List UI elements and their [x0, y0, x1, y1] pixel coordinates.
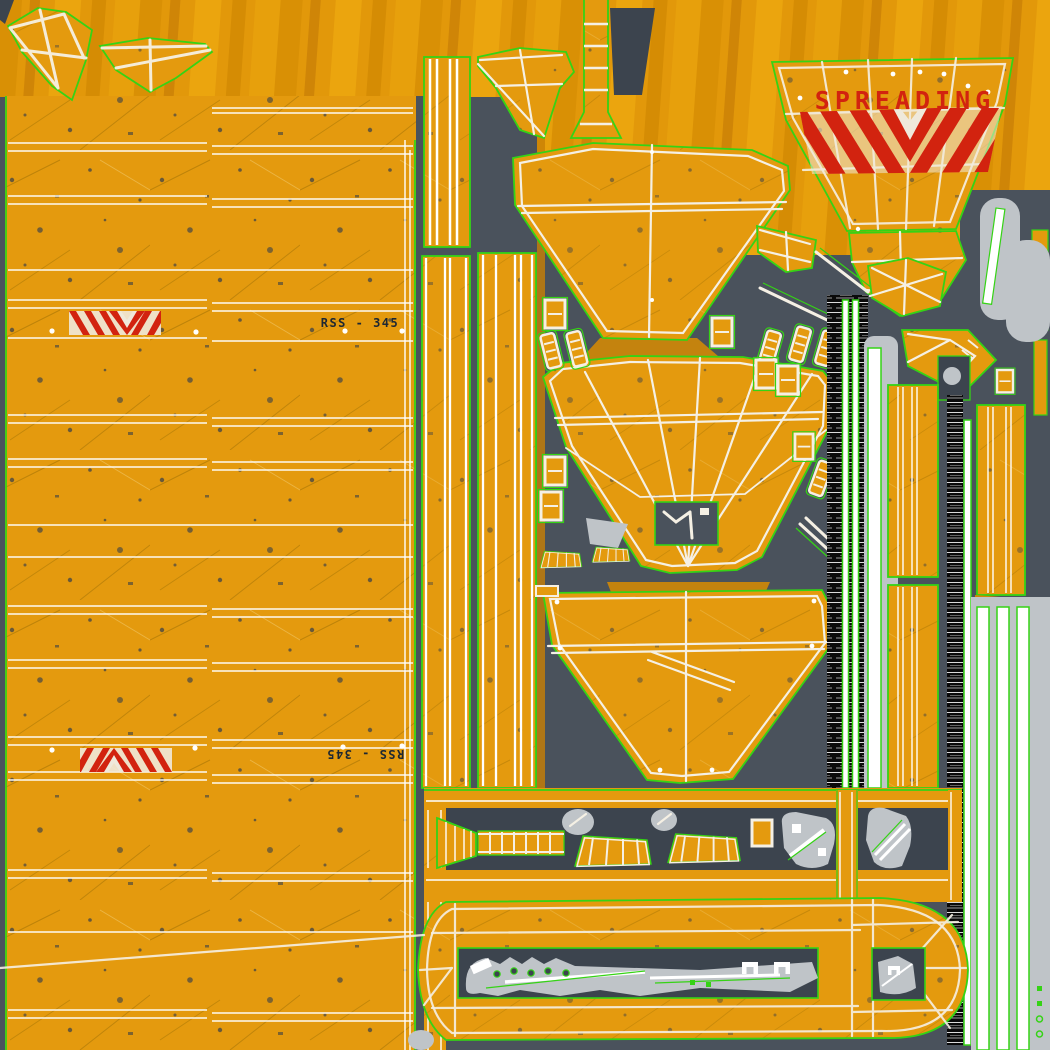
strip-column-a [424, 57, 470, 247]
unit-id-text-top: RSS - 345 [321, 316, 400, 330]
white-bar-a [843, 300, 849, 788]
orange-strip-upper [888, 385, 938, 577]
band1-segment-strip [478, 831, 564, 855]
hazard-chevron-decal-bottom [80, 748, 172, 772]
texture-atlas-canvas: RSS - 345 RSS - 345 [0, 0, 1050, 1050]
white-slat-1 [977, 607, 989, 1050]
strip-column-b [422, 256, 470, 788]
hazard-chevron-decal-top [69, 311, 161, 335]
left-hull-panel: RSS - 345 RSS - 345 [5, 96, 416, 1050]
orange-strip-lower [888, 585, 938, 788]
uv-texture-atlas: RSS - 345 RSS - 345 [0, 0, 1050, 1050]
white-bar-b [853, 300, 859, 788]
white-slat-2 [997, 607, 1009, 1050]
unit-id-text-bottom-mirrored: RSS - 345 [326, 747, 405, 761]
gray-blob-1 [562, 809, 594, 835]
band1-right-corner [948, 790, 962, 902]
strip-column-c [478, 253, 536, 788]
band1-top-bar [424, 788, 962, 810]
white-strip-wide [868, 348, 881, 788]
band1-vent [752, 820, 772, 846]
band1-bottom-bar [424, 868, 962, 902]
gray-pebble [408, 1030, 434, 1050]
spreading-decal-text: SPREADING [815, 86, 995, 115]
white-slat-3 [1017, 607, 1029, 1050]
